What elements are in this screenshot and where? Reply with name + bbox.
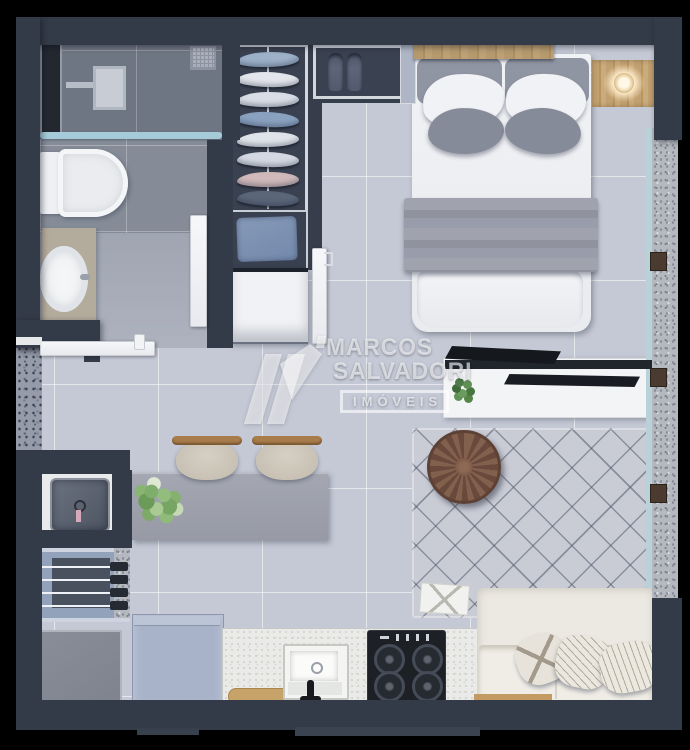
- bottom-tab: [295, 727, 480, 736]
- window-handle: [650, 252, 667, 271]
- bar-stool-back: [172, 436, 242, 445]
- table-lamp: [614, 73, 634, 93]
- wall-left-upper: [16, 17, 40, 348]
- bar-stool-back: [252, 436, 322, 445]
- toilet-tank: [40, 152, 60, 214]
- hanging-garment: [237, 131, 299, 148]
- wall-bottom: [16, 700, 662, 730]
- shower-arm: [66, 82, 96, 88]
- watermark-line1: MARCOS: [326, 336, 472, 360]
- clothesline-handle: [110, 588, 128, 597]
- gray-throw-blanket: [404, 198, 598, 272]
- bar-stool-seat: [176, 440, 238, 480]
- bar-stool-seat: [256, 440, 318, 480]
- shoe-right: [347, 53, 362, 91]
- hanging-garment: [237, 111, 299, 128]
- watermark: MARCOS SALVADORI IMÓVEIS: [244, 330, 474, 430]
- watermark-text: MARCOS SALVADORI IMÓVEIS: [326, 336, 480, 413]
- sink-faucet: [80, 274, 90, 280]
- washing-machine: [40, 630, 122, 706]
- refrigerator: [132, 614, 224, 708]
- window-handle: [650, 368, 667, 387]
- shower-glass-screen: [40, 132, 222, 139]
- door-handle: [134, 334, 145, 350]
- granite-ledge: [16, 345, 42, 467]
- clothesline-handle: [110, 601, 128, 610]
- breakfast-counter: [132, 472, 328, 540]
- burner: [374, 671, 405, 702]
- wall-bathroom-side: [207, 140, 233, 348]
- round-pouf: [427, 430, 501, 504]
- folded-clothes-shelf: [230, 210, 308, 272]
- watermark-line3: IMÓVEIS: [340, 390, 449, 413]
- hanging-garment: [237, 190, 299, 207]
- bathroom-door-open: [190, 215, 207, 327]
- burner: [412, 671, 443, 702]
- toilet-bowl: [58, 149, 128, 217]
- laundry-tap-handle: [76, 510, 81, 522]
- watermark-logo-icon: [244, 334, 328, 426]
- refrigerator-handles: [134, 616, 220, 626]
- closet-door-handle: [324, 252, 333, 266]
- clothesline-handle: [110, 562, 128, 571]
- wall-top: [16, 17, 662, 45]
- sink-drain: [311, 662, 323, 674]
- entry-threshold: [16, 337, 42, 345]
- wall-left-lower: [16, 465, 42, 730]
- hanging-garment: [237, 171, 299, 187]
- hanging-garment: [237, 151, 299, 167]
- bottom-tab: [137, 728, 199, 735]
- folded-shirt: [236, 216, 297, 262]
- shoe-shelf: [313, 45, 410, 99]
- kitchen-sink: [283, 644, 349, 700]
- counter-plant: [145, 485, 159, 499]
- wardrobe-hanging-rail: [230, 44, 308, 218]
- hanging-garment: [237, 91, 299, 107]
- studio-floor-plan: MARCOS SALVADORI IMÓVEIS: [0, 0, 690, 750]
- wall-bathroom-right: [222, 17, 240, 140]
- cooktop-dash: [380, 636, 389, 639]
- clothesline-handle: [110, 575, 128, 584]
- dish-rack: [419, 582, 470, 615]
- wall-right-upper: [654, 17, 682, 140]
- shower-head: [93, 66, 126, 110]
- watermark-line2: SALVADORI: [333, 360, 472, 384]
- sink-lower-tray: [288, 682, 342, 695]
- floor-drain: [190, 46, 216, 70]
- hanging-garment: [237, 71, 299, 87]
- window-handle: [650, 484, 667, 503]
- wall-niche: [40, 42, 62, 136]
- bed-foot-linen: [417, 270, 583, 328]
- hanging-garment: [237, 51, 299, 68]
- cooktop-knobs: [396, 634, 436, 641]
- shoe-left: [328, 53, 343, 91]
